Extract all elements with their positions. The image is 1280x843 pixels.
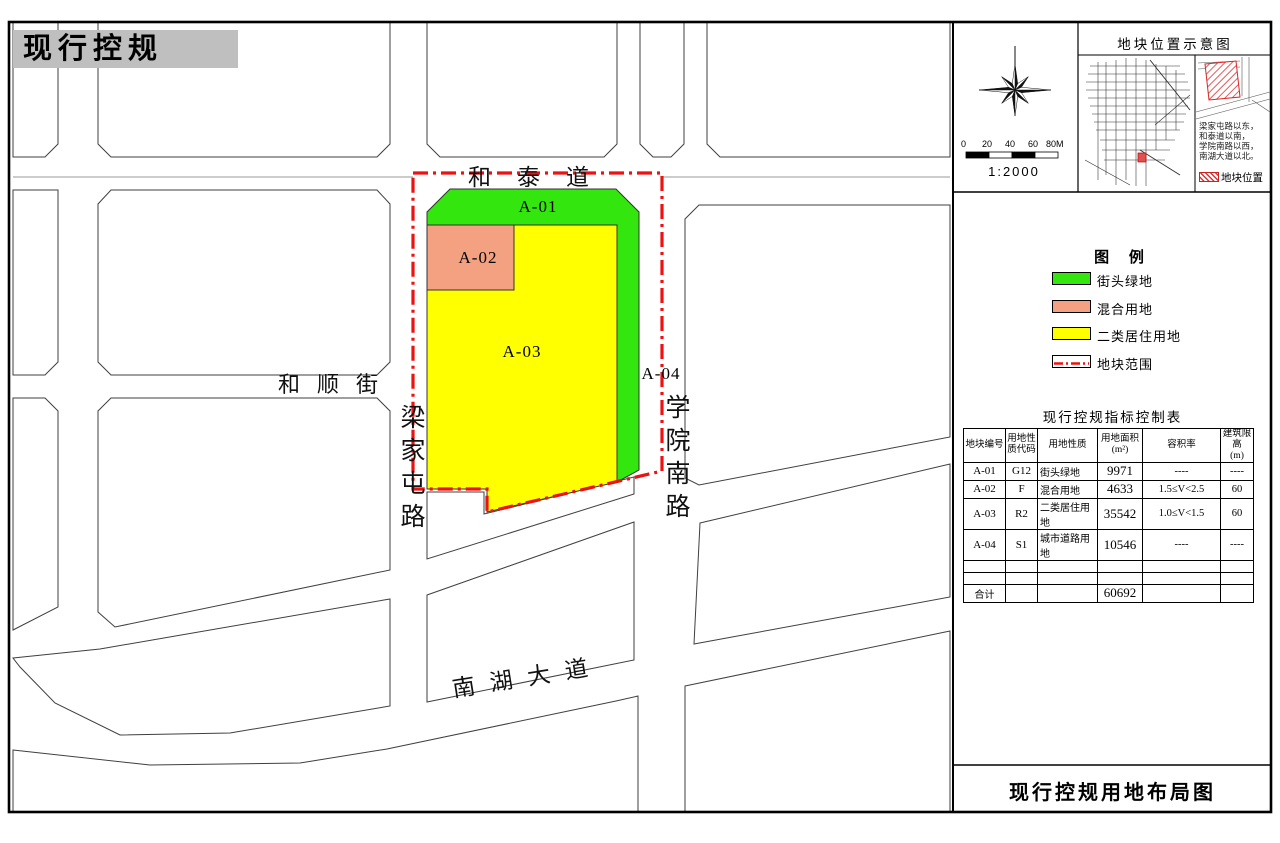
- sheet-footer-title: 现行控规用地布局图: [953, 776, 1272, 805]
- legend-swatch-green: [1052, 272, 1091, 285]
- location-inset-title: 地块位置示意图: [1078, 33, 1272, 53]
- sheet-title: 现行控规: [13, 30, 238, 68]
- legend-label-mixed: 混合用地: [1097, 299, 1207, 318]
- city-sketch-site-marker: [1138, 153, 1146, 162]
- table-row-a03: A-03 R2 二类居住用地 35542 1.0≤V<1.5 60: [964, 498, 1254, 529]
- table-row-a04: A-04 S1 城市道路用地 10546 ---- ----: [964, 529, 1254, 560]
- site-location-hatch-icon: [1199, 172, 1219, 182]
- legend-title: 图 例: [1078, 246, 1168, 267]
- parcel-label-a03: A-03: [482, 342, 562, 362]
- table-row-empty: [964, 572, 1254, 584]
- scale-tick-20: 20: [982, 139, 992, 149]
- compass-rose-icon: [979, 46, 1051, 116]
- scale-ratio: 1:2000: [953, 164, 1075, 179]
- legend-label-boundary: 地块范围: [1097, 354, 1207, 373]
- table-row-a01: A-01 G12 街头绿地 9971 ---- ----: [964, 462, 1254, 480]
- table-row-total: 合计 60692: [964, 584, 1254, 602]
- city-map-sketch: [1085, 58, 1190, 186]
- site-parcel-hatch: [1205, 61, 1240, 100]
- table-row-a02: A-02 F 混合用地 4633 1.5≤V<2.5 60: [964, 480, 1254, 498]
- road-label-hetai-road: 和泰道: [468, 158, 615, 192]
- site-location-label: 地块位置: [1221, 170, 1263, 185]
- road-label-heshun-street: 和顺街: [278, 367, 395, 399]
- scale-tick-40: 40: [1005, 139, 1015, 149]
- location-desc-line-4: 南湖大道以北。: [1199, 152, 1269, 162]
- legend-swatch-boundary: [1052, 355, 1091, 368]
- legend-label-green: 街头绿地: [1097, 271, 1207, 290]
- parcel-label-a01: A-01: [498, 197, 578, 217]
- legend-label-residential: 二类居住用地: [1097, 326, 1207, 345]
- legend-swatch-mixed: [1052, 300, 1091, 313]
- scale-tick-60: 60: [1028, 139, 1038, 149]
- indicator-table: 地块编号 用地性质代码 用地性质 用地面积(m²) 容积率 建筑限高(m) A-…: [963, 428, 1254, 603]
- road-label-liangjiatun-road: 梁家屯路: [392, 404, 428, 536]
- planning-sheet: 现行控规 和泰道 和顺街 梁家屯路 学院南路 南湖大道 A-01 A-02 A-…: [0, 0, 1280, 843]
- site-parcel-sketch: [1196, 57, 1270, 119]
- scale-bar: [966, 152, 1058, 158]
- indicator-table-title: 现行控规指标控制表: [953, 406, 1272, 426]
- table-header-row: 地块编号 用地性质代码 用地性质 用地面积(m²) 容积率 建筑限高(m): [964, 429, 1254, 463]
- scale-tick-0: 0: [961, 139, 966, 149]
- parcel-label-a04: A-04: [621, 364, 701, 384]
- legend-swatch-residential: [1052, 327, 1091, 340]
- road-label-xueyuan-south-road: 学院南路: [657, 394, 693, 526]
- scale-tick-80m: 80M: [1046, 139, 1064, 149]
- parcel-label-a02: A-02: [438, 248, 518, 268]
- boundary-dashdot-icon: [1053, 358, 1090, 369]
- table-row-empty: [964, 560, 1254, 572]
